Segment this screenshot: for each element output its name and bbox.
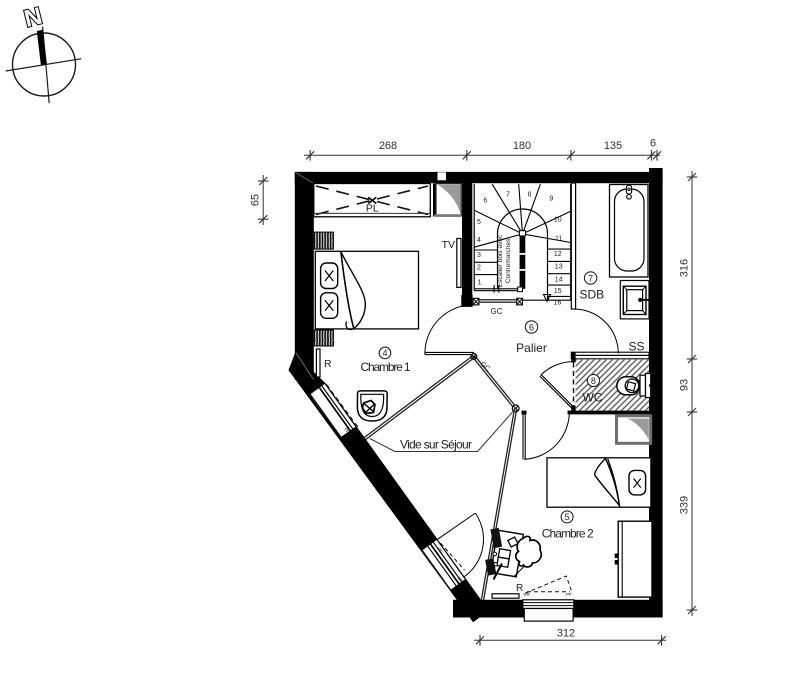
svg-text:9: 9 xyxy=(549,195,553,202)
svg-text:268: 268 xyxy=(379,140,397,152)
svg-text:13: 13 xyxy=(555,264,563,271)
svg-text:Chambre 2: Chambre 2 xyxy=(542,527,594,541)
svg-text:8: 8 xyxy=(528,192,532,199)
svg-text:1: 1 xyxy=(478,280,482,287)
svg-text:8: 8 xyxy=(591,376,596,386)
svg-text:316: 316 xyxy=(679,259,691,277)
svg-text:10: 10 xyxy=(554,217,562,224)
svg-text:4: 4 xyxy=(477,237,481,244)
svg-text:135: 135 xyxy=(604,140,622,152)
svg-text:TV: TV xyxy=(442,239,455,251)
svg-text:93: 93 xyxy=(679,379,691,391)
svg-text:11: 11 xyxy=(555,235,562,242)
svg-text:65: 65 xyxy=(250,194,262,206)
svg-text:15: 15 xyxy=(554,288,562,295)
svg-text:Vide sur Séjour: Vide sur Séjour xyxy=(400,438,472,452)
svg-text:SDB: SDB xyxy=(579,288,604,302)
svg-text:5: 5 xyxy=(565,512,570,522)
svg-text:WC: WC xyxy=(583,390,603,404)
svg-text:Escalier bois avec: Escalier bois avec xyxy=(497,234,504,287)
svg-text:R: R xyxy=(324,358,332,370)
svg-text:312: 312 xyxy=(557,628,575,640)
svg-text:SS: SS xyxy=(628,340,644,354)
svg-text:12: 12 xyxy=(554,251,562,258)
svg-text:6: 6 xyxy=(650,138,656,150)
svg-text:N: N xyxy=(22,3,45,33)
svg-text:6: 6 xyxy=(483,198,487,205)
svg-text:6: 6 xyxy=(529,322,534,332)
svg-text:7: 7 xyxy=(588,273,593,283)
svg-text:Contremarches: Contremarches xyxy=(505,238,512,283)
svg-text:2: 2 xyxy=(477,265,481,272)
svg-text:14: 14 xyxy=(555,276,563,283)
svg-text:R: R xyxy=(516,583,523,594)
svg-text:4: 4 xyxy=(382,348,387,358)
svg-text:Chambre 1: Chambre 1 xyxy=(361,360,411,374)
svg-text:7: 7 xyxy=(506,192,510,199)
svg-text:180: 180 xyxy=(513,140,531,152)
svg-text:PF: PF xyxy=(566,592,572,597)
svg-text:5: 5 xyxy=(477,219,481,226)
svg-text:GC: GC xyxy=(491,307,503,316)
svg-text:PL: PL xyxy=(366,203,379,215)
svg-text:3: 3 xyxy=(477,252,481,259)
svg-text:339: 339 xyxy=(679,496,691,514)
svg-text:Palier: Palier xyxy=(516,341,547,355)
svg-text:16: 16 xyxy=(554,300,562,307)
